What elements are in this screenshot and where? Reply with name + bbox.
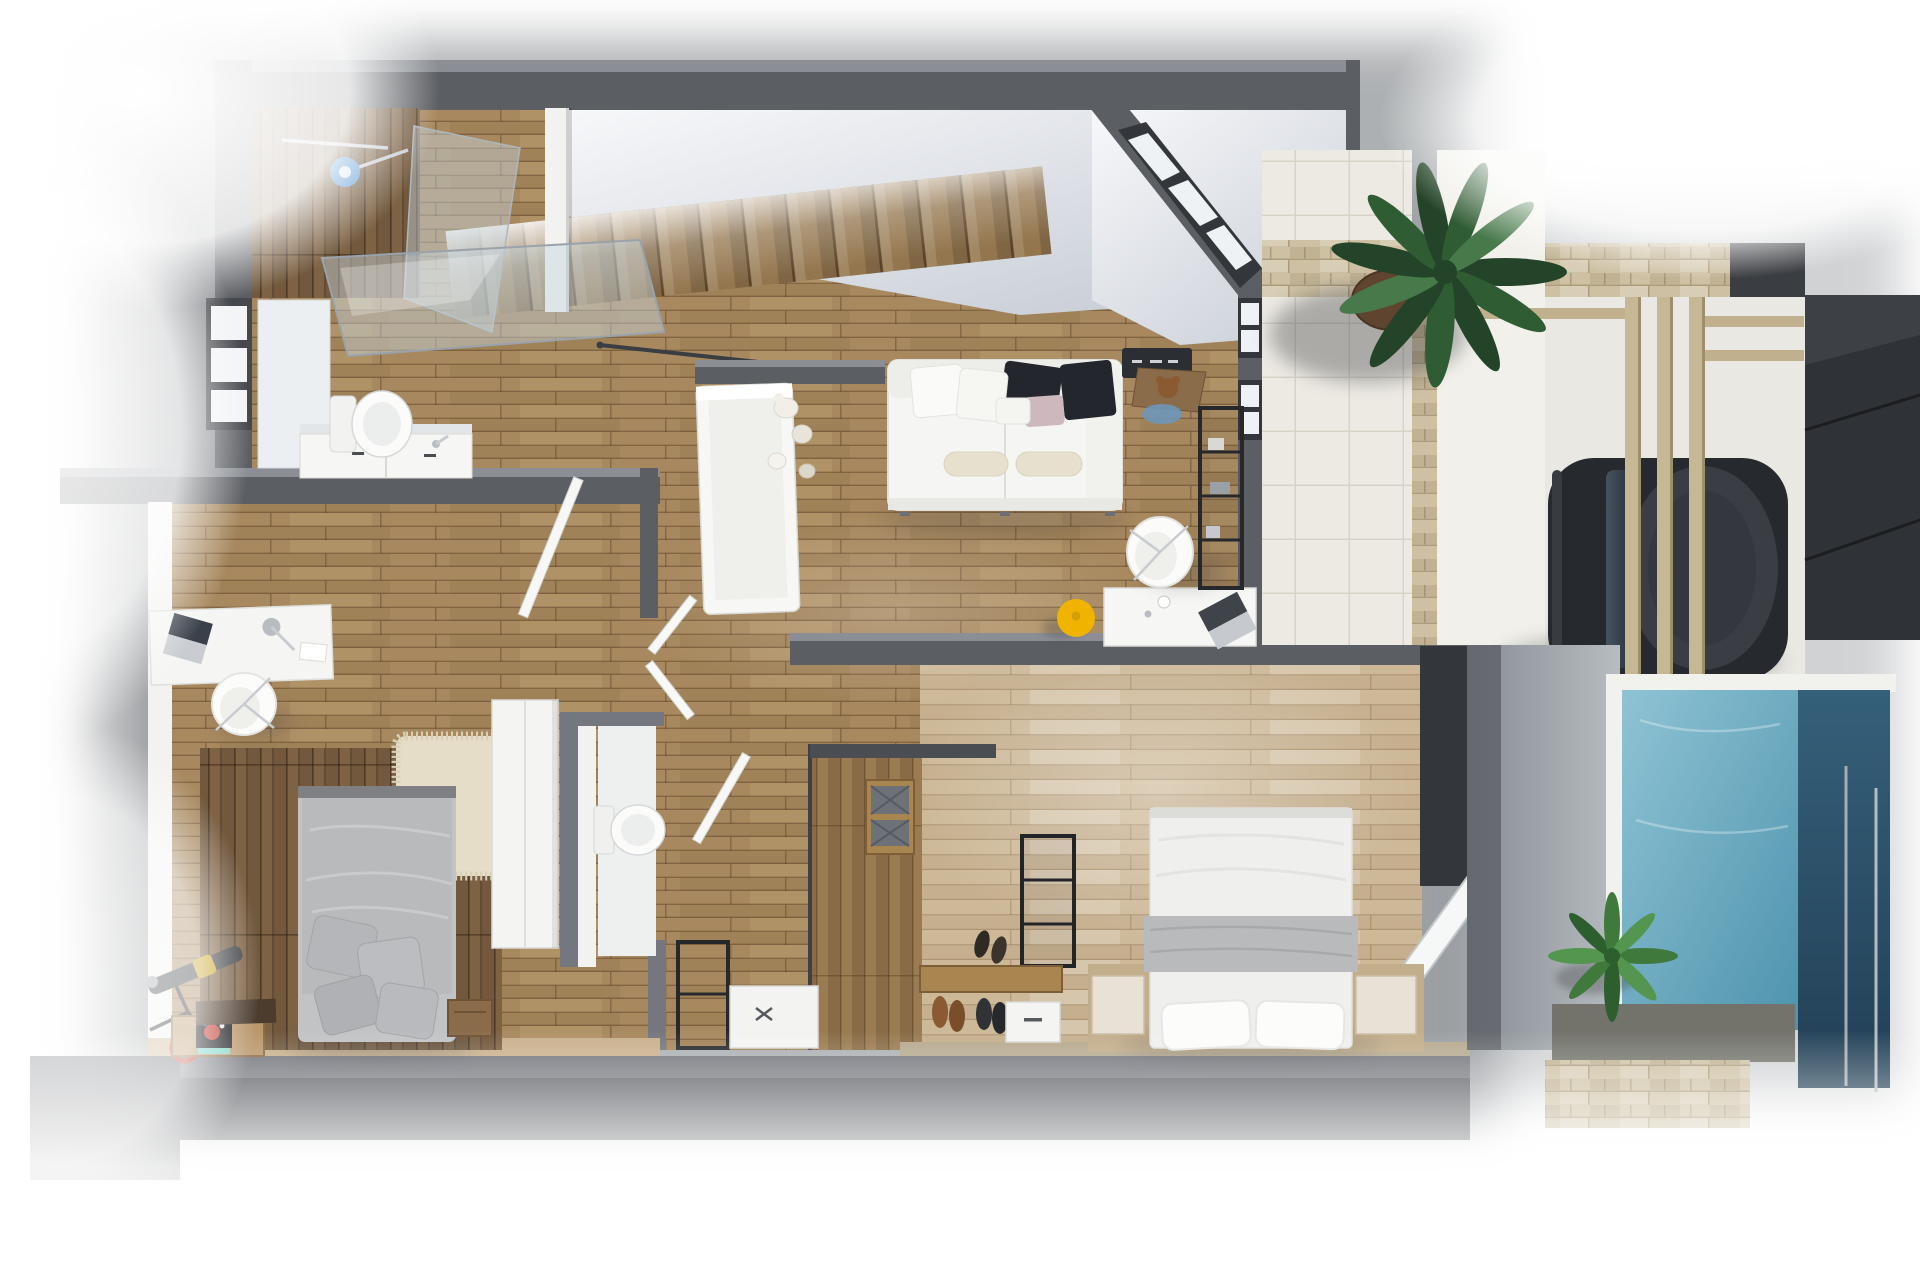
- toilet: [330, 391, 412, 457]
- swivel-chair: [212, 673, 276, 735]
- coffee-cup: [1158, 596, 1170, 608]
- closet-top-rail: [810, 744, 996, 758]
- tall-white-wardrobe: [492, 700, 558, 948]
- paper-sheet: [299, 642, 327, 662]
- double-bed: [298, 786, 456, 1042]
- white-sofa: [888, 359, 1122, 516]
- shell-chair: [1127, 517, 1193, 587]
- black-clothes-rack: [1022, 836, 1074, 966]
- wall-connector: [640, 468, 658, 618]
- bottom-fade: [0, 1030, 1920, 1280]
- basket-shelf: [866, 780, 914, 854]
- dark-wardrobe: [1420, 646, 1470, 886]
- bolster-pillow: [1016, 452, 1082, 476]
- pool-water: [1622, 690, 1798, 1030]
- floorplan-canvas: [0, 0, 1920, 1280]
- pool-coping: [1606, 674, 1896, 692]
- interior-window: [1238, 298, 1262, 358]
- floorplan-render: Photorealistic top-down 3D rendering of …: [0, 0, 1920, 1280]
- nightstand: [1092, 976, 1144, 1034]
- wc-toilet: [594, 805, 665, 855]
- nightstand: [1356, 976, 1416, 1034]
- double-bed: [1144, 808, 1358, 1050]
- blue-cloth: [1142, 404, 1182, 424]
- black-shelf-unit: [1200, 408, 1242, 588]
- bolster-pillow: [944, 452, 1008, 476]
- desk: [1104, 588, 1257, 650]
- shoe-bench: [920, 966, 1062, 992]
- gray-blanket: [1144, 916, 1358, 972]
- dark-cushion: [1059, 359, 1117, 420]
- deck-wall-shadow: [1467, 645, 1501, 1050]
- wc-wall: [560, 712, 578, 967]
